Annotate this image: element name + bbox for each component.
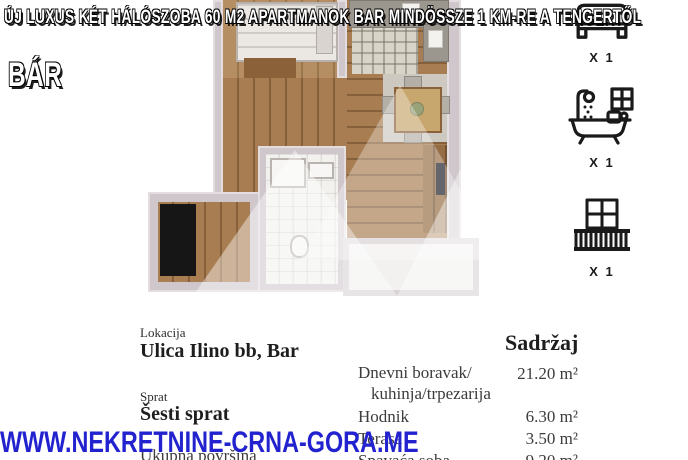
room-area: 9.20 m² (460, 452, 578, 460)
room-label: Dnevni boravak/ (358, 364, 472, 382)
room-sublabel: kuhinja/trpezarija (371, 385, 491, 403)
floor-value: Šesti sprat (140, 404, 229, 425)
agency-watermark: WWW.NEKRETNINE-CRNA-GORA.ME (0, 426, 419, 460)
room-label: Hodnik (358, 408, 409, 426)
wardrobe (160, 204, 196, 276)
bed-count: X 1 (589, 50, 615, 65)
bath-icon (564, 84, 640, 146)
location-tag: BÁR (8, 56, 62, 95)
location-value: Ulica Ilino bb, Bar (140, 341, 299, 362)
listing-image: ÚJ LUXUS KÉT HÁLÓSZOBA 60 M2 APARTMANOK … (0, 0, 688, 460)
floor-label: Sprat (140, 390, 167, 404)
sofa-pillow (428, 30, 443, 48)
room-area: 6.30 m² (460, 408, 578, 426)
room-area: 3.50 m² (460, 430, 578, 448)
bath-count: X 1 (589, 155, 615, 170)
balcony-icon (570, 197, 634, 255)
bedroom-bench (244, 58, 296, 78)
contents-header: Sadržaj (505, 331, 578, 354)
wall-left-upper (213, 0, 223, 205)
page-title: ÚJ LUXUS KÉT HÁLÓSZOBA 60 M2 APARTMANOK … (4, 7, 641, 29)
balcony-count: X 1 (589, 264, 615, 279)
location-label: Lokacija (140, 326, 185, 340)
feature-bath: X 1 (562, 84, 642, 170)
feature-balcony: X 1 (566, 197, 638, 279)
floorplan (140, 0, 488, 312)
plaid-rug (352, 28, 418, 74)
room-area: 21.20 m² (460, 365, 578, 383)
